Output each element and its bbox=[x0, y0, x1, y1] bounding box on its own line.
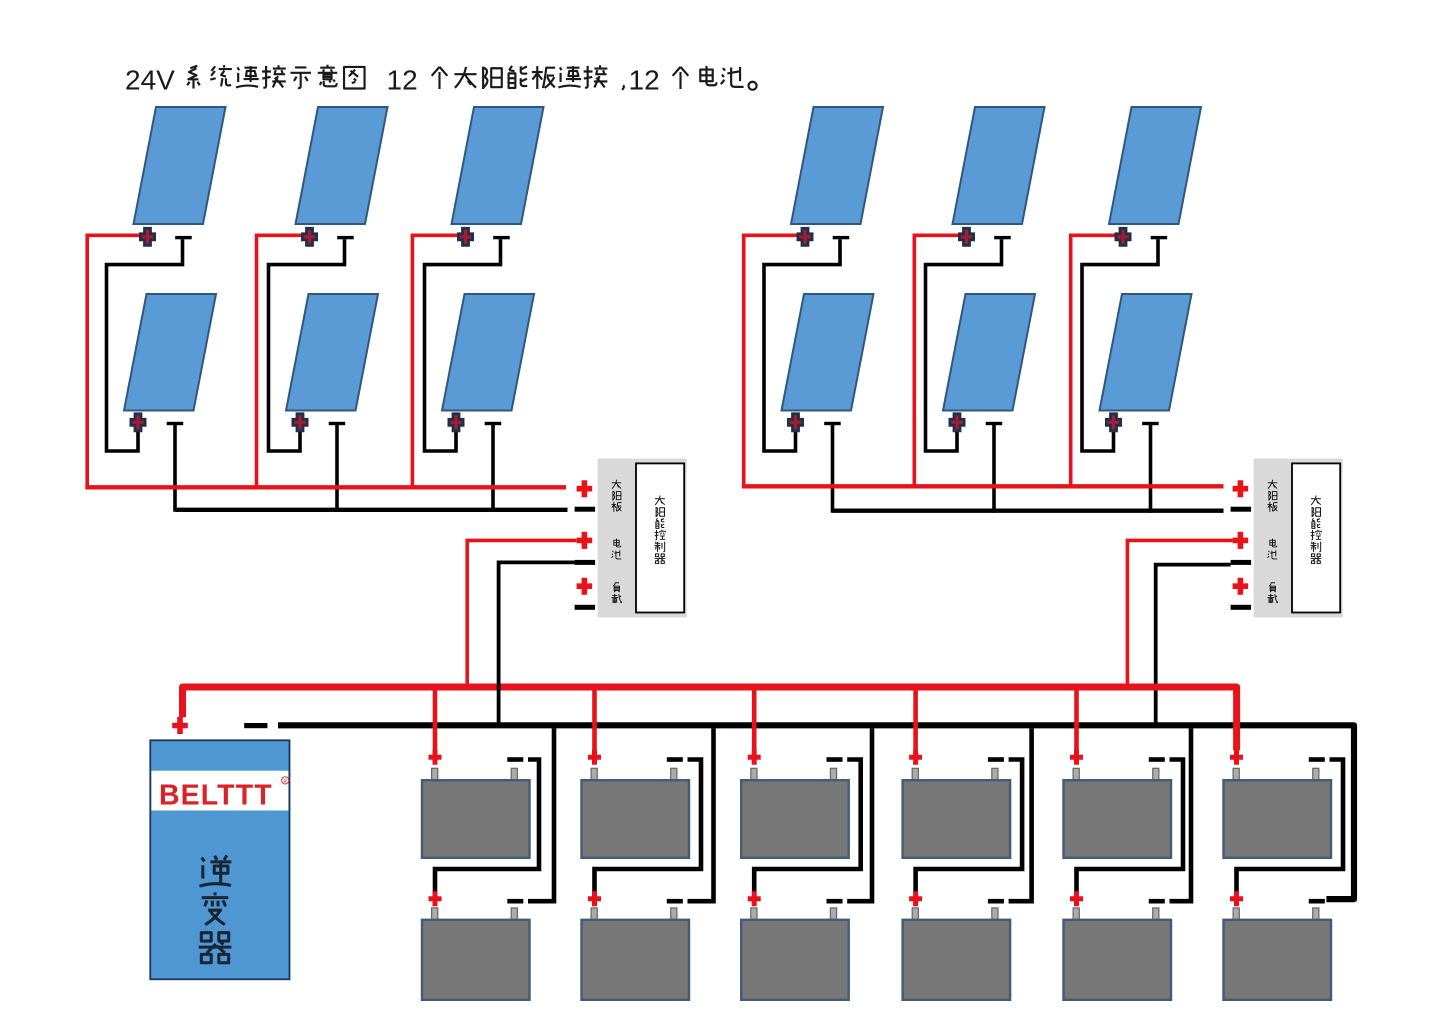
svg-text:BELTTT: BELTTT bbox=[159, 780, 273, 812]
svg-text:12: 12 bbox=[387, 65, 418, 96]
svg-text:24V: 24V bbox=[125, 65, 175, 96]
svg-text:R: R bbox=[283, 779, 287, 785]
svg-text:12: 12 bbox=[629, 65, 660, 96]
